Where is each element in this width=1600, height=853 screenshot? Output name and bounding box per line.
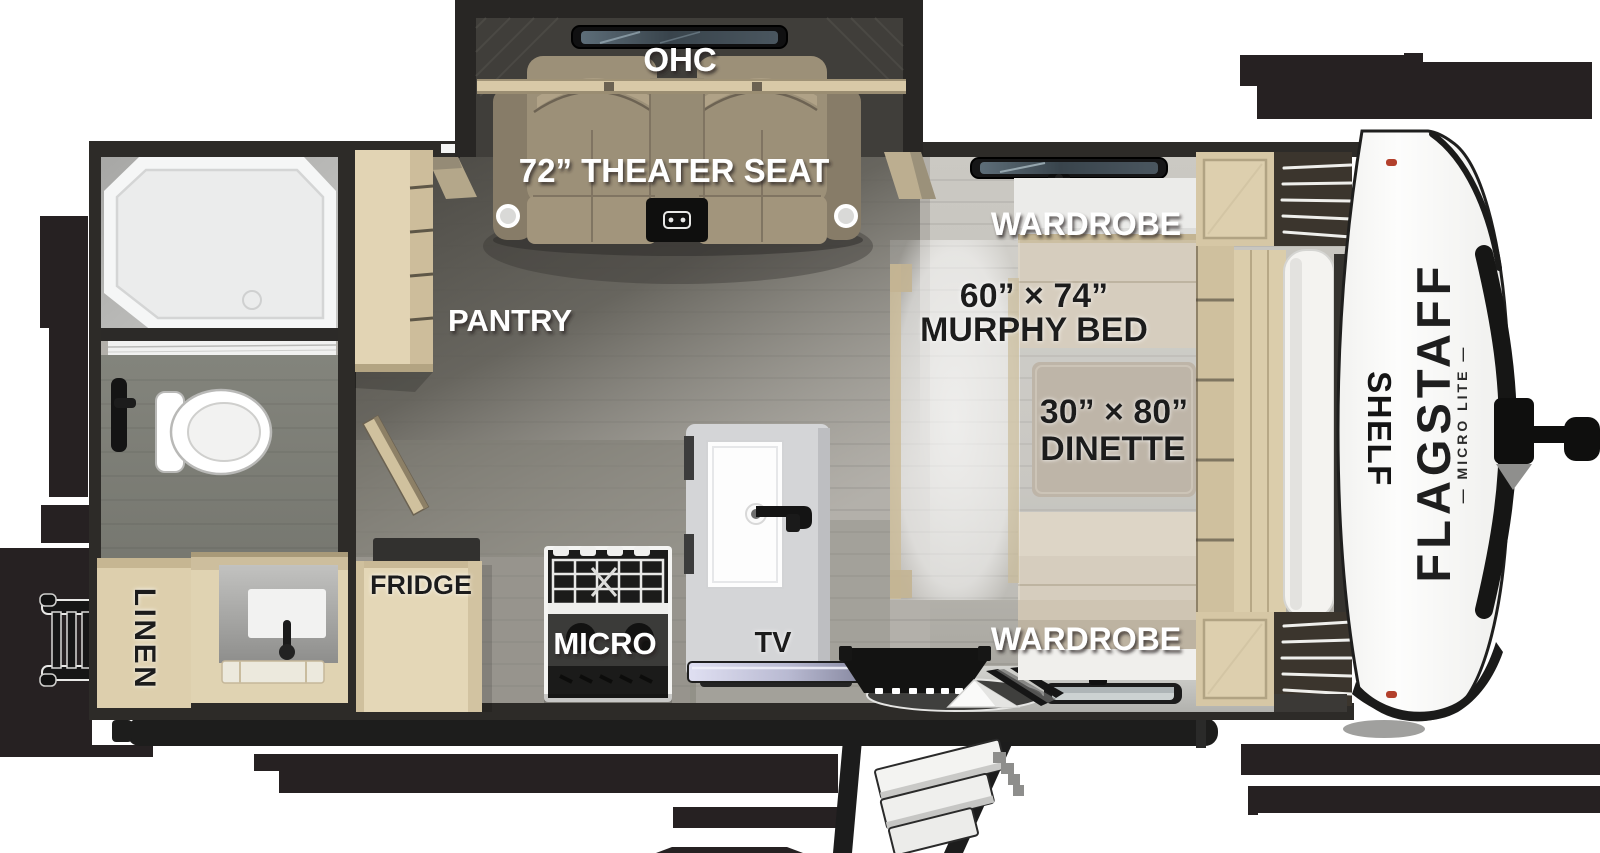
svg-text:SHELF: SHELF [1361, 371, 1398, 487]
svg-text:MURPHY BED: MURPHY BED [920, 311, 1148, 349]
svg-text:— MICRO LITE —: — MICRO LITE — [1454, 345, 1470, 504]
svg-text:30” × 80”: 30” × 80” [1040, 393, 1188, 431]
svg-text:60” × 74”: 60” × 74” [960, 277, 1108, 315]
svg-text:LINEN: LINEN [128, 588, 161, 691]
svg-text:FRIDGE: FRIDGE [370, 570, 472, 600]
svg-text:WARDROBE: WARDROBE [991, 621, 1181, 657]
svg-text:MICRO: MICRO [553, 626, 656, 661]
svg-text:WARDROBE: WARDROBE [991, 206, 1181, 242]
svg-text:TV: TV [754, 627, 792, 659]
svg-text:72” THEATER SEAT: 72” THEATER SEAT [519, 152, 830, 189]
svg-text:OHC: OHC [643, 41, 716, 78]
svg-text:PANTRY: PANTRY [448, 303, 572, 338]
svg-text:DINETTE: DINETTE [1040, 430, 1185, 468]
svg-text:FLAGSTAFF: FLAGSTAFF [1407, 262, 1460, 583]
